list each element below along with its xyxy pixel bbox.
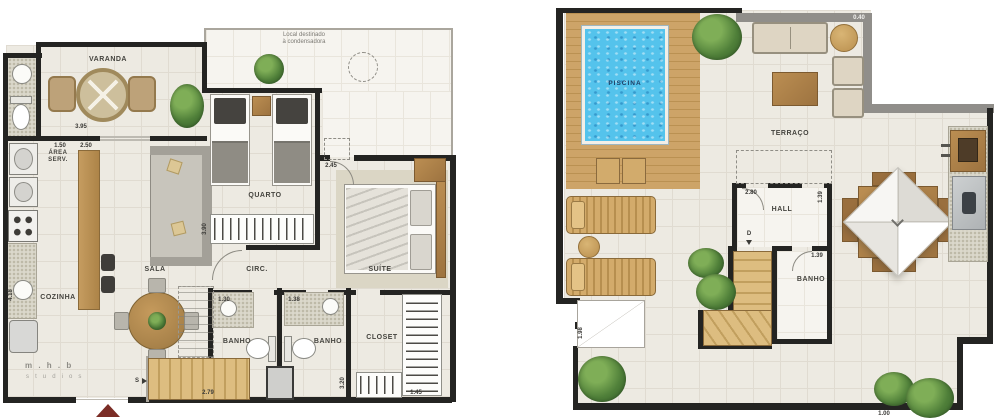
room-label-suite: SUÍTE — [355, 266, 405, 274]
dimension: 3.90 — [202, 217, 208, 241]
sofa-arm — [150, 257, 212, 266]
stair-direction-label: D — [744, 231, 754, 237]
hanger-rack — [360, 376, 398, 394]
varanda-chair — [128, 76, 156, 112]
dimension: 1.30 — [212, 297, 236, 303]
sun-lounger — [566, 196, 656, 234]
bed-pillow — [276, 98, 308, 124]
condenser-circle — [348, 52, 378, 82]
watermark-logo: m . h . b — [25, 362, 73, 370]
duct-shaft — [266, 366, 294, 400]
headboard — [436, 180, 446, 278]
tech-boundary-line — [204, 28, 453, 30]
room-label-banho-2: BANHO — [306, 338, 350, 346]
washer-icon — [9, 143, 38, 175]
dimension: 3.95 — [66, 124, 96, 130]
floor-plans-stage: S Local destinadoà condensadora VARANDA … — [0, 0, 1000, 419]
dimension: 1.50 — [48, 143, 72, 149]
lounger-pillow — [571, 201, 585, 229]
room-label-area-serv: ÁREA SERV. — [40, 150, 76, 164]
toilet-tank — [10, 96, 32, 104]
room-label-varanda: VARANDA — [68, 56, 148, 64]
sink-icon — [12, 64, 32, 84]
tub-basin — [14, 182, 33, 202]
coffee-table — [772, 72, 818, 106]
plant-icon — [906, 378, 954, 418]
terrace-sofa — [752, 22, 828, 54]
laundry-tub-icon — [9, 177, 38, 207]
wall-segment — [556, 8, 563, 304]
side-table — [578, 236, 600, 258]
room-label-closet: CLOSET — [358, 334, 406, 342]
stove-icon — [8, 210, 38, 242]
room-label-quarto: QUARTO — [230, 192, 300, 200]
single-bed — [210, 94, 250, 186]
wall-segment — [827, 183, 832, 251]
bed-pillow — [410, 234, 432, 270]
grill-knob — [941, 154, 950, 157]
dimension: 2.45 — [318, 163, 344, 169]
closet-hangers — [356, 372, 402, 398]
room-label-sala: SALA — [135, 266, 175, 274]
single-bed — [272, 94, 312, 186]
plant-icon — [170, 84, 204, 128]
pergola-projection — [736, 150, 832, 184]
hanger-rack — [214, 218, 310, 240]
wall-segment — [36, 45, 41, 140]
terrace-armchair — [832, 56, 864, 86]
dimension: 2.80 — [738, 190, 764, 196]
bar-stool — [101, 276, 115, 293]
room-label-banho: BANHO — [788, 276, 834, 284]
condenser-slot — [324, 138, 350, 160]
note-line1: Local destinado — [283, 32, 325, 38]
stair-direction-label: S — [132, 378, 142, 384]
tv-cabinet — [414, 158, 446, 182]
dimension: 1.98 — [578, 322, 584, 344]
stair-arrow-icon — [142, 378, 147, 384]
varanda-chair — [48, 76, 76, 112]
room-label-cozinha: COZINHA — [36, 294, 80, 302]
room-label-terraco: TERRAÇO — [756, 130, 824, 138]
dimension: 1.39 — [818, 186, 824, 208]
outside-notch — [871, 0, 1000, 105]
dimension: 0.40 — [846, 15, 872, 21]
wall-segment — [827, 246, 832, 344]
wall-segment — [36, 42, 207, 47]
wall-segment — [246, 245, 320, 250]
stove-burners — [10, 212, 36, 240]
entrance-arrow-icon — [96, 404, 120, 417]
table-cross-pattern — [83, 75, 123, 115]
dimension: 2.50 — [74, 143, 98, 149]
sink-basin-icon — [962, 192, 976, 214]
wall-segment — [150, 136, 207, 141]
room-label-hall: HALL — [760, 206, 804, 214]
fridge-icon — [9, 320, 38, 353]
nightstand — [252, 96, 271, 116]
tech-boundary-line — [451, 28, 453, 157]
wardrobe-hangers — [210, 214, 314, 244]
room-label-piscina: PISCINA — [592, 81, 658, 88]
wall-segment — [202, 42, 207, 92]
grill-grate — [958, 138, 978, 162]
stairs-winder — [703, 310, 772, 346]
sofa-seam — [790, 27, 791, 49]
dimension: 1.00 — [872, 411, 896, 417]
room-label-banho-1: BANHO — [215, 338, 259, 346]
kitchen-sink-icon — [13, 280, 33, 300]
wall-segment — [315, 88, 320, 250]
dimension: 3.20 — [340, 372, 346, 394]
sliding-door — [100, 139, 150, 141]
sofa-arm — [150, 146, 212, 155]
wall-segment — [556, 8, 742, 13]
toilet-tank — [284, 336, 292, 362]
wall-segment — [202, 88, 322, 93]
hanger-rack — [406, 298, 438, 392]
plant-icon — [692, 14, 742, 60]
table-plant-icon — [148, 312, 166, 330]
washer-drum — [14, 148, 33, 170]
stairs-straight-flight — [733, 251, 772, 315]
wall-segment — [732, 183, 737, 251]
wall-segment — [772, 246, 777, 344]
entrance-threshold — [76, 399, 128, 400]
wall-segment — [450, 155, 456, 402]
bed-duvet — [346, 188, 408, 270]
sun-lounger — [566, 258, 656, 296]
toilet-icon — [12, 104, 30, 130]
wall-segment — [573, 403, 963, 410]
bed-blanket — [212, 141, 248, 183]
wall-segment — [3, 136, 100, 141]
stairs-upper-flight-dashed — [178, 286, 214, 358]
wall-segment — [772, 339, 832, 344]
grill-knob — [941, 144, 950, 147]
dining-chair — [148, 278, 166, 293]
dimension: 1.45 — [404, 390, 428, 396]
dining-chair — [114, 312, 129, 330]
deck-step — [622, 158, 646, 184]
dimension: 1.38 — [282, 297, 306, 303]
sliding-door — [100, 136, 150, 138]
basin-icon — [322, 298, 339, 315]
room-label-circ: CIRC. — [235, 266, 279, 274]
lounger-pillow — [571, 263, 585, 291]
wall-segment — [3, 397, 76, 403]
deck-step — [596, 158, 620, 184]
wall-segment-gray — [863, 13, 872, 112]
dimension: 2.79 — [196, 390, 220, 396]
plant-icon — [254, 54, 284, 84]
plant-icon — [578, 356, 626, 402]
varanda-table — [76, 68, 130, 122]
outside-corner — [963, 344, 1000, 419]
kitchen-island — [78, 150, 100, 310]
bed-pillow — [410, 190, 432, 226]
dimension: 4.18 — [8, 284, 14, 306]
stair-arrow-icon — [746, 240, 752, 245]
terrace-armchair — [832, 88, 864, 118]
bed-blanket — [274, 141, 310, 183]
condenser-note: Local destinadoà condensadora — [276, 32, 332, 46]
wall-segment-gray — [863, 104, 994, 113]
wall-segment — [957, 337, 963, 410]
stair-void — [577, 300, 645, 348]
dimension: 1.39 — [806, 253, 828, 259]
bed-pillow — [214, 98, 246, 124]
note-line2: à condensadora — [282, 39, 325, 45]
plant-icon — [696, 274, 736, 310]
bar-stool — [101, 254, 115, 271]
closet-hangers — [402, 294, 442, 396]
watermark-sub: s t u d i o s — [26, 374, 84, 380]
pouf — [830, 24, 858, 52]
